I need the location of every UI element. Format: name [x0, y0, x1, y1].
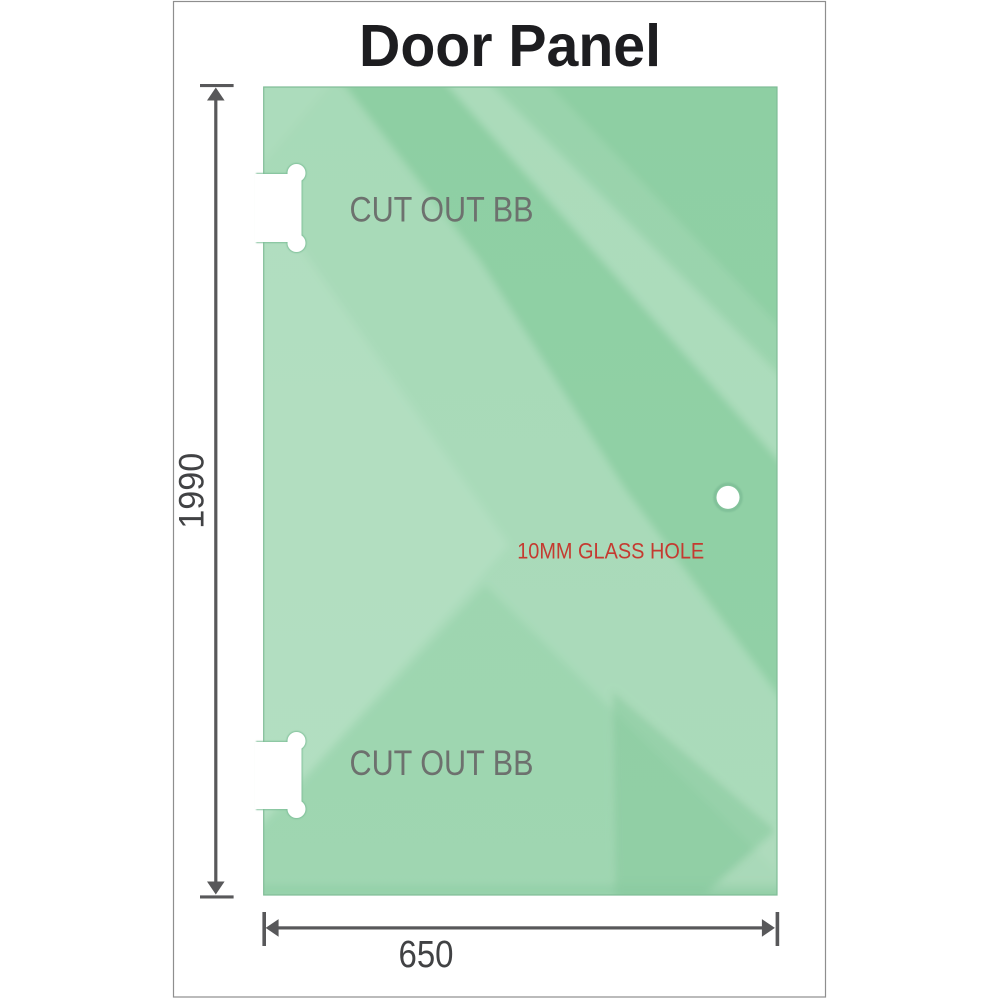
svg-text:CUT OUT BB: CUT OUT BB [350, 190, 534, 229]
svg-text:1990: 1990 [173, 453, 212, 529]
svg-text:CUT OUT BB: CUT OUT BB [350, 744, 534, 783]
svg-text:Door Panel: Door Panel [359, 13, 661, 79]
svg-text:650: 650 [399, 934, 454, 976]
svg-text:10MM GLASS HOLE: 10MM GLASS HOLE [517, 538, 704, 563]
